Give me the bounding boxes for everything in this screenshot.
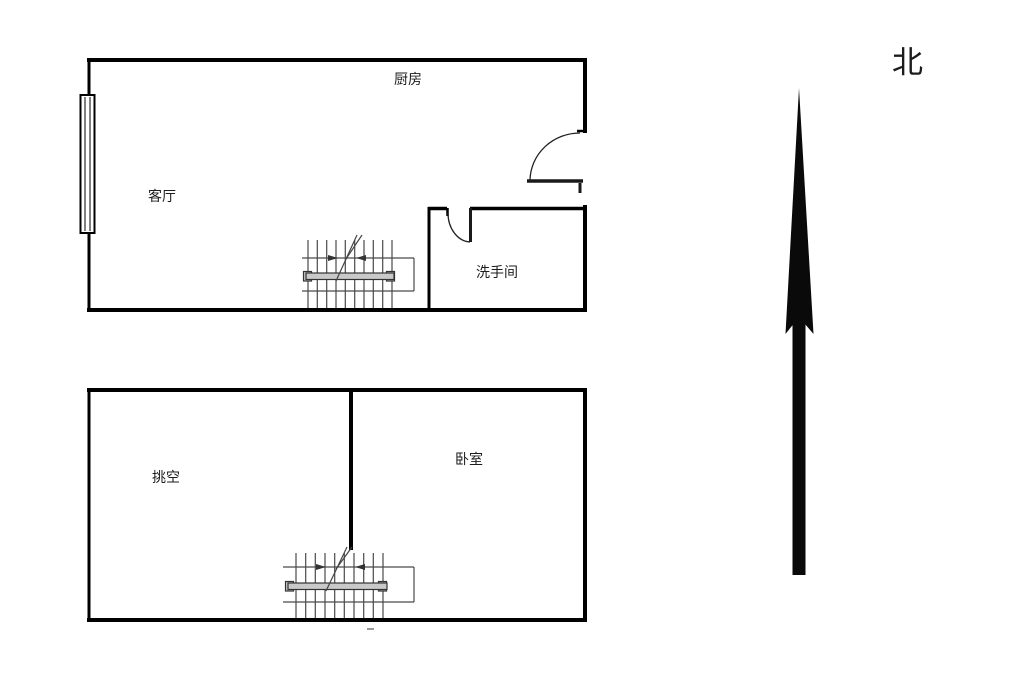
arrow-left-icon xyxy=(356,255,366,261)
entry-door-swing-arc xyxy=(530,133,580,180)
stair-handrail xyxy=(304,272,395,282)
level2-staircase xyxy=(283,547,414,629)
level1-entry-door xyxy=(527,133,583,193)
north-arrow-icon xyxy=(786,88,814,575)
level1-bathroom-walls xyxy=(428,207,586,310)
floor-plan-drawing xyxy=(0,0,1024,680)
window-frame xyxy=(81,95,95,233)
arrow-left-icon xyxy=(355,564,365,570)
floor-plan-page: 厨房 客厅 洗手间 挑空 卧室 北 xyxy=(0,0,1024,680)
level1-staircase xyxy=(302,235,414,308)
room-label-bathroom: 洗手间 xyxy=(476,264,518,280)
stair-handrail xyxy=(286,582,388,592)
room-label-living-room: 客厅 xyxy=(148,188,176,204)
room-label-void: 挑空 xyxy=(152,469,180,485)
bathroom-door-swing-arc xyxy=(448,213,470,242)
level1-bathroom-door xyxy=(448,208,471,242)
north-label: 北 xyxy=(892,46,923,80)
level1-window xyxy=(81,95,95,233)
north-arrow-head xyxy=(786,88,814,334)
room-label-bedroom: 卧室 xyxy=(455,451,483,467)
north-arrow-shaft xyxy=(793,316,806,575)
room-label-kitchen: 厨房 xyxy=(394,71,422,87)
